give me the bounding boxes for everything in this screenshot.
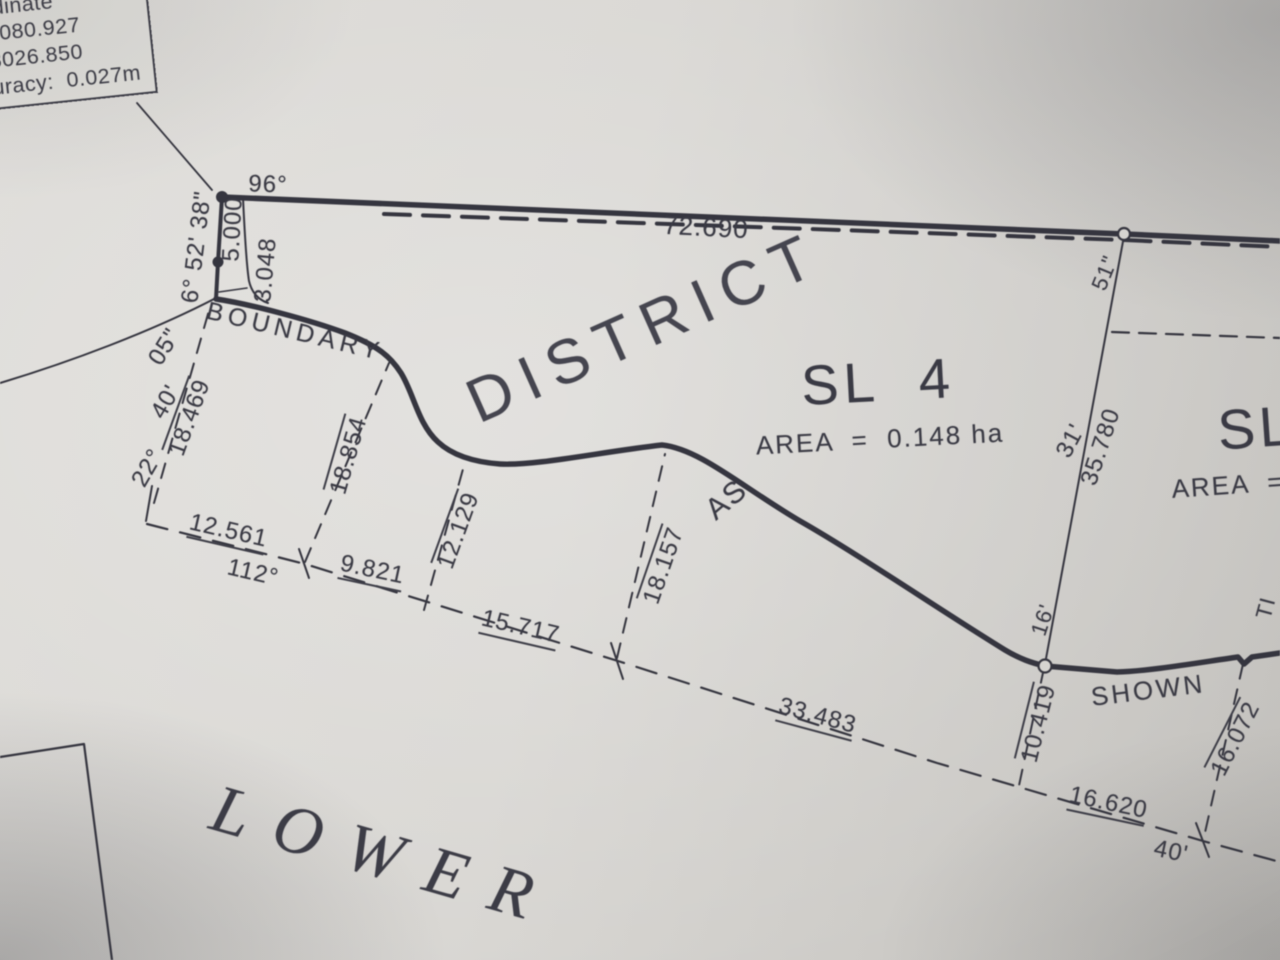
area-right-label: AREA = [1171,468,1280,502]
dim-72690: 72.690 [663,212,750,242]
top-boundary-dashed [384,214,1280,247]
info-box-leader [137,103,212,190]
dim-5000: 5.000 [219,196,246,262]
monument-circle-top [1118,228,1130,240]
ink-layer: 2002.0 rdinate 5080.927 3026.850 uracy: … [0,0,1280,960]
bottom-left-box-corner [0,744,112,960]
tick-3048 [219,288,247,292]
monument-circle-bottom [1039,660,1052,673]
sl4-label: SL 4 [800,350,956,414]
dashed-branch-line [1112,332,1280,338]
angle-96: 96° [248,172,288,197]
tick-112 [299,549,309,578]
survey-plan-photo: 2002.0 rdinate 5080.927 3026.850 uracy: … [0,0,1280,960]
sl-right-label: SL [1216,397,1280,458]
dim-3048: 3.048 [251,237,281,304]
